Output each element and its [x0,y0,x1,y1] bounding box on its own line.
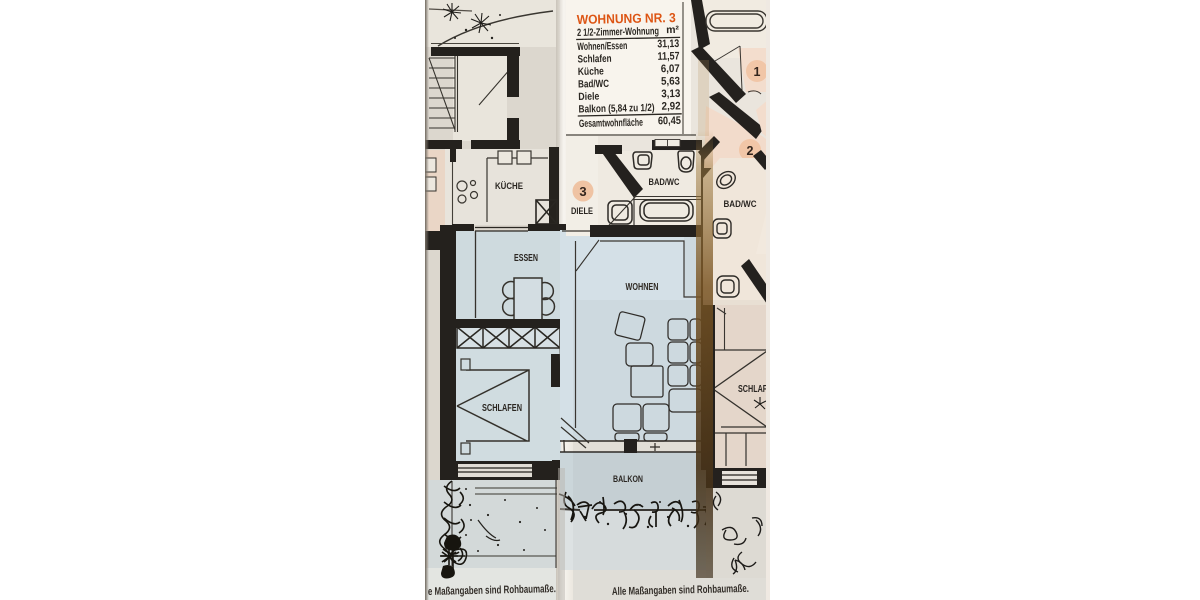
svg-text:BAD/WC: BAD/WC [724,199,757,210]
svg-text:Balkon (5,84 zu 1/2): Balkon (5,84 zu 1/2) [578,102,654,116]
svg-text:Schlafen: Schlafen [577,53,611,66]
svg-text:5,63: 5,63 [661,75,680,87]
svg-text:Wohnen/Essen: Wohnen/Essen [577,40,627,53]
svg-text:WOHNUNG NR. 3: WOHNUNG NR. 3 [577,10,676,27]
svg-text:Küche: Küche [578,65,604,78]
svg-text:31,13: 31,13 [657,38,679,50]
svg-text:11,57: 11,57 [657,50,679,62]
svg-text:2,92: 2,92 [661,100,680,112]
svg-text:DIELE: DIELE [571,206,593,216]
svg-text:2 1/2-Zimmer-Wohnung: 2 1/2-Zimmer-Wohnung [577,25,659,39]
svg-text:60,45: 60,45 [658,115,681,127]
svg-text:1: 1 [754,65,761,79]
svg-text:3: 3 [579,184,586,199]
svg-text:6,07: 6,07 [661,63,680,75]
svg-text:3,13: 3,13 [661,88,680,100]
svg-text:Gesamtwohnfläche: Gesamtwohnfläche [579,117,643,130]
svg-text:WOHNEN: WOHNEN [626,282,659,293]
svg-text:Bad/WC: Bad/WC [578,78,610,91]
svg-text:2: 2 [747,144,754,158]
svg-text:m²: m² [666,24,680,36]
svg-text:BAD/WC: BAD/WC [649,177,680,188]
svg-text:Diele: Diele [578,91,599,103]
